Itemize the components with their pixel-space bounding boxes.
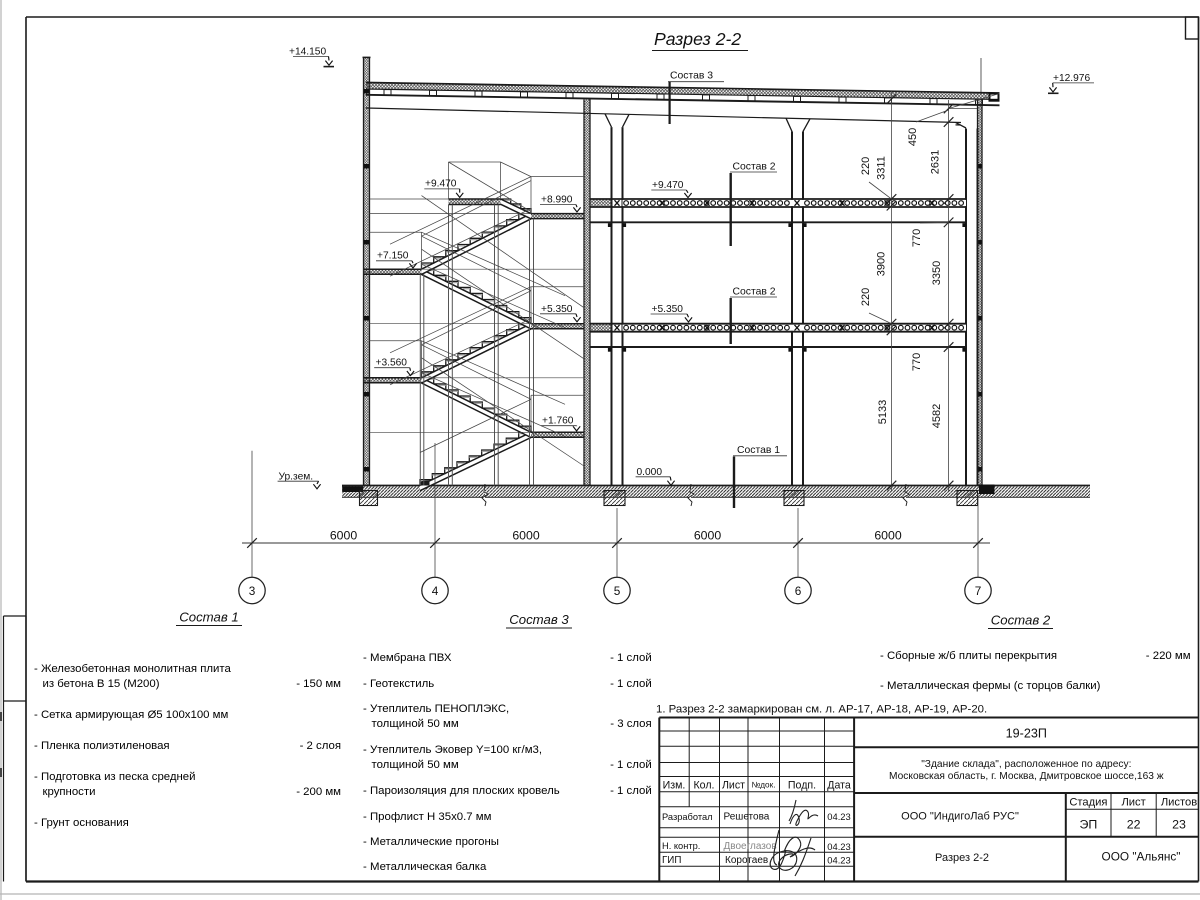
- svg-text:5: 5: [614, 584, 621, 598]
- svg-text:толщиной 50 мм: толщиной 50 мм: [372, 759, 459, 771]
- svg-text:6000: 6000: [874, 529, 902, 543]
- svg-text:4582: 4582: [931, 404, 943, 428]
- svg-text:220: 220: [860, 157, 872, 175]
- svg-text:ГИП: ГИП: [662, 855, 681, 866]
- svg-text:- Металлические прогоны: - Металлические прогоны: [363, 836, 499, 848]
- svg-text:- Подготовка из песка средней: - Подготовка из песка средней: [34, 771, 196, 783]
- svg-text:- 1 слой: - 1 слой: [610, 652, 652, 664]
- svg-text:770: 770: [911, 353, 923, 371]
- svg-text:- 3 слоя: - 3 слоя: [610, 718, 651, 730]
- svg-text:- Металлическая фермы (с торцо: - Металлическая фермы (с торцов балки): [880, 680, 1101, 692]
- svg-text:- 1 слой: - 1 слой: [610, 785, 652, 797]
- svg-text:- Грунт основания: - Грунт основания: [34, 817, 129, 829]
- svg-text:- 150 мм: - 150 мм: [296, 678, 341, 690]
- svg-text:Двоеглазов: Двоеглазов: [724, 841, 777, 852]
- svg-text:- Металлическая балка: - Металлическая балка: [363, 861, 487, 873]
- svg-text:04.23: 04.23: [827, 811, 850, 822]
- svg-text:- 200 мм: - 200 мм: [296, 786, 341, 798]
- svg-text:+1.760: +1.760: [542, 416, 574, 427]
- svg-text:Разработал: Разработал: [662, 812, 713, 822]
- svg-text:- Профлист Н 35х0.7 мм: - Профлист Н 35х0.7 мм: [363, 811, 492, 823]
- svg-text:- Железобетонная монолитная п: - Железобетонная монолитная плита: [34, 663, 231, 675]
- svg-text:ООО "ИндигоЛаб РУС": ООО "ИндигоЛаб РУС": [901, 810, 1019, 822]
- svg-text:Решетова: Решетова: [724, 812, 770, 823]
- svg-text:Состав 2: Состав 2: [733, 286, 776, 297]
- svg-text:Подп.: Подп.: [788, 779, 816, 791]
- svg-text:ООО "Альянс": ООО "Альянс": [1102, 850, 1181, 864]
- svg-text:Коротаев: Коротаев: [725, 855, 768, 866]
- svg-text:- 1 слой: - 1 слой: [610, 678, 652, 690]
- svg-text:- Сборные ж/б плиты перекрытия: - Сборные ж/б плиты перекрытия: [880, 650, 1057, 662]
- svg-text:+9.470: +9.470: [652, 180, 684, 191]
- svg-text:Состав 1: Состав 1: [179, 610, 239, 625]
- svg-text:+12.976: +12.976: [1053, 73, 1090, 84]
- svg-text:3: 3: [249, 584, 256, 598]
- svg-text:"Здание склада", расположенное: "Здание склада", расположенное по адресу…: [921, 759, 1131, 770]
- svg-text:Изм.: Изм.: [663, 779, 686, 791]
- svg-text:3311: 3311: [876, 156, 888, 180]
- svg-text:Кол.: Кол.: [694, 779, 715, 791]
- svg-text:Разрез 2-2: Разрез 2-2: [654, 29, 741, 49]
- svg-text:3900: 3900: [876, 252, 888, 276]
- svg-text:Стадия: Стадия: [1069, 797, 1107, 809]
- svg-text:крупности: крупности: [43, 786, 96, 798]
- svg-text:толщиной 50 мм: толщиной 50 мм: [372, 718, 459, 730]
- svg-text:- Утеплитель Эковер Y=100 кг/м: - Утеплитель Эковер Y=100 кг/м3,: [363, 744, 542, 756]
- svg-text:+14.150: +14.150: [289, 47, 326, 58]
- svg-text:+3.560: +3.560: [376, 358, 408, 369]
- svg-text:ЭП: ЭП: [1079, 817, 1097, 831]
- svg-text:+5.350: +5.350: [652, 304, 684, 315]
- svg-text:6000: 6000: [694, 529, 722, 543]
- svg-text:из бетона В 15 (М200): из бетона В 15 (М200): [43, 678, 160, 690]
- svg-text:- Пароизоляция для плоских кро: - Пароизоляция для плоских кровель: [363, 785, 560, 797]
- svg-text:4: 4: [432, 584, 439, 598]
- svg-text:Разрез 2-2: Разрез 2-2: [935, 852, 989, 864]
- svg-text:04.23: 04.23: [827, 841, 850, 852]
- svg-text:5133: 5133: [877, 400, 889, 424]
- svg-text:6: 6: [795, 584, 802, 598]
- svg-text:Лист: Лист: [722, 779, 745, 791]
- svg-text:- 220 мм: - 220 мм: [1146, 650, 1191, 662]
- svg-text:22: 22: [1127, 817, 1141, 831]
- svg-text:Состав 2: Состав 2: [991, 613, 1051, 628]
- svg-text:- Пленка полиэтиленовая: - Пленка полиэтиленовая: [34, 740, 170, 752]
- svg-text:Состав 3: Состав 3: [670, 71, 713, 82]
- svg-text:+9.470: +9.470: [425, 179, 457, 190]
- svg-text:Московская область, г. Москва,: Московская область, г. Москва, Дмитровск…: [889, 770, 1164, 782]
- svg-text:Ур.зем.: Ур.зем.: [279, 471, 314, 482]
- svg-text:№док.: №док.: [752, 781, 776, 790]
- svg-text:- Утеплитель ПЕНОПЛЭКС,: - Утеплитель ПЕНОПЛЭКС,: [363, 703, 509, 715]
- svg-text:1. Разрез 2-2 замаркирован см.: 1. Разрез 2-2 замаркирован см. л. АР-17,…: [656, 704, 987, 716]
- svg-text:Дата: Дата: [827, 779, 851, 791]
- svg-text:+5.350: +5.350: [541, 304, 573, 315]
- svg-text:0.000: 0.000: [637, 467, 663, 478]
- svg-text:220: 220: [860, 288, 872, 306]
- svg-text:Лист: Лист: [1121, 797, 1145, 809]
- svg-text:- Геотекстиль: - Геотекстиль: [363, 678, 434, 690]
- svg-text:+7.150: +7.150: [377, 251, 409, 262]
- svg-text:450: 450: [907, 128, 919, 146]
- svg-text:+8.990: +8.990: [541, 194, 573, 205]
- svg-text:Состав 1: Состав 1: [737, 445, 780, 456]
- svg-text:3350: 3350: [931, 261, 943, 285]
- svg-text:6000: 6000: [330, 529, 358, 543]
- svg-text:23: 23: [1172, 817, 1186, 831]
- svg-text:- Мембрана ПВХ: - Мембрана ПВХ: [363, 652, 452, 664]
- svg-text:- 2 слоя: - 2 слоя: [300, 740, 341, 752]
- svg-text:770: 770: [911, 229, 923, 247]
- svg-text:6000: 6000: [512, 529, 540, 543]
- svg-text:04.23: 04.23: [827, 855, 850, 866]
- svg-text:19-23П: 19-23П: [1006, 726, 1047, 740]
- svg-text:Состав 2: Состав 2: [733, 161, 776, 172]
- svg-text:Листов: Листов: [1161, 797, 1197, 809]
- svg-text:7: 7: [975, 584, 982, 598]
- svg-text:- Сетка армирующая Ø5 100х100: - Сетка армирующая Ø5 100х100 мм: [34, 709, 228, 721]
- svg-text:Состав 3: Состав 3: [509, 612, 569, 627]
- svg-text:Н. контр.: Н. контр.: [662, 841, 700, 851]
- svg-text:2631: 2631: [930, 150, 942, 174]
- svg-text:- 1 слой: - 1 слой: [610, 759, 652, 771]
